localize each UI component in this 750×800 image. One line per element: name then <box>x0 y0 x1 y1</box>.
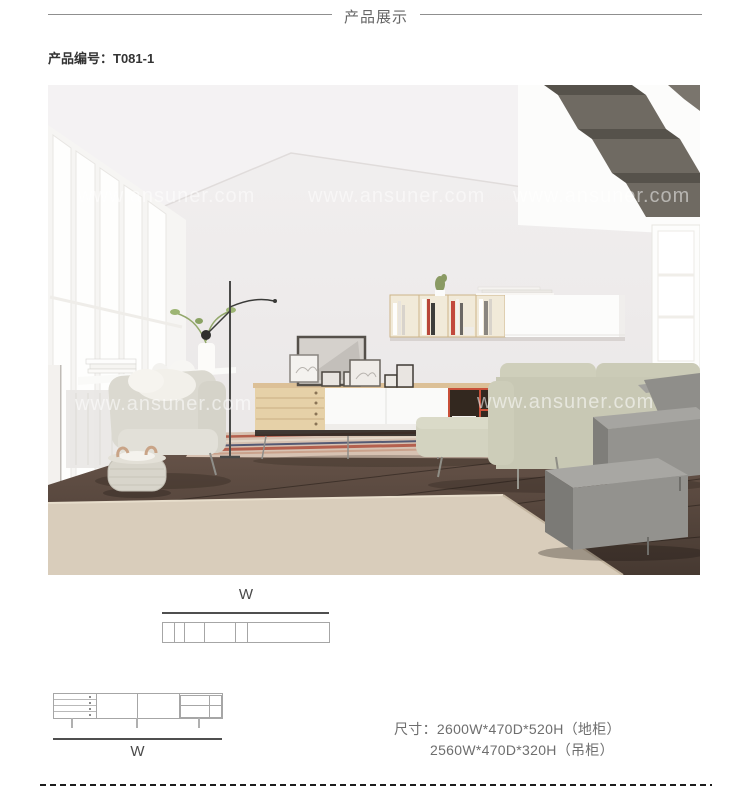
top-view-divider <box>235 623 236 642</box>
top-view-divider <box>247 623 248 642</box>
cabinet-leg <box>198 718 200 728</box>
size-value-floor-cabinet: 2600W*470D*520H（地柜） <box>437 721 621 737</box>
top-view-divider <box>174 623 175 642</box>
front-view-dim-line <box>53 738 222 740</box>
cabinet-leg <box>71 718 73 728</box>
drawer-line <box>54 699 96 700</box>
shelf-box-divider <box>209 696 210 717</box>
top-view-outline <box>162 622 330 643</box>
product-code: 产品编号：T081-1 <box>48 48 154 67</box>
page-title: 产品展示 <box>332 6 420 27</box>
bottom-dashed-rule <box>40 784 712 786</box>
size-label: 尺寸： <box>394 721 437 737</box>
drawer-knob <box>89 708 91 710</box>
storage-basket <box>103 447 171 498</box>
front-view-divider <box>137 694 138 718</box>
size-line-1: 尺寸：2600W*470D*520H（地柜） <box>394 719 621 739</box>
top-view-divider <box>184 623 185 642</box>
drawer-line <box>54 711 96 712</box>
drawer-knob <box>89 714 91 716</box>
shelf-box-divider <box>181 705 221 706</box>
front-view-divider <box>96 694 97 718</box>
front-view-width-label: W <box>53 743 222 760</box>
top-view-divider <box>204 623 205 642</box>
header-rule-left <box>48 14 332 15</box>
front-view-outline <box>53 693 223 719</box>
product-photo: www.ansuner.com www.ansuner.com www.ansu… <box>48 85 700 575</box>
drawer-line <box>54 705 96 706</box>
top-view-width-label: W <box>162 586 330 603</box>
product-display-page: 产品展示 产品编号：T081-1 <box>0 0 750 800</box>
header-rule-right <box>420 14 702 15</box>
front-view-shelf-box <box>180 695 222 718</box>
staircase-top <box>518 85 700 235</box>
drawer-knob <box>89 702 91 704</box>
top-view-dim-line <box>162 612 329 614</box>
cabinet-leg <box>136 718 138 728</box>
size-line-2: 2560W*470D*320H（吊柜） <box>430 740 614 760</box>
product-photo-scene <box>48 85 700 575</box>
drawer-knob <box>89 696 91 698</box>
size-value-hanging-cabinet: 2560W*470D*320H（吊柜） <box>430 742 614 758</box>
